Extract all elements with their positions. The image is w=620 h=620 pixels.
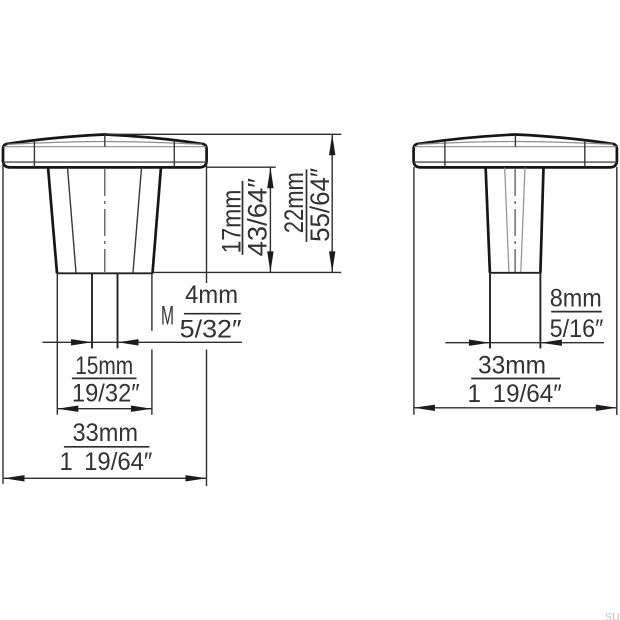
svg-text:su: su	[605, 608, 620, 620]
svg-text:5/16″: 5/16″	[550, 315, 604, 343]
svg-text:15mm: 15mm	[75, 352, 133, 380]
svg-text:4mm: 4mm	[185, 281, 238, 309]
svg-text:5/32″: 5/32″	[180, 316, 242, 344]
svg-text:55/64″: 55/64″	[305, 167, 335, 241]
svg-text:1 19/64″: 1 19/64″	[468, 380, 562, 408]
svg-text:19/32″: 19/32″	[72, 379, 140, 407]
svg-text:M: M	[161, 301, 174, 331]
svg-text:8mm: 8mm	[550, 284, 602, 312]
svg-text:1 19/64″: 1 19/64″	[59, 448, 152, 476]
svg-text:33mm: 33mm	[478, 352, 546, 380]
svg-text:33mm: 33mm	[73, 419, 139, 447]
svg-text:43/64″: 43/64″	[242, 178, 272, 257]
